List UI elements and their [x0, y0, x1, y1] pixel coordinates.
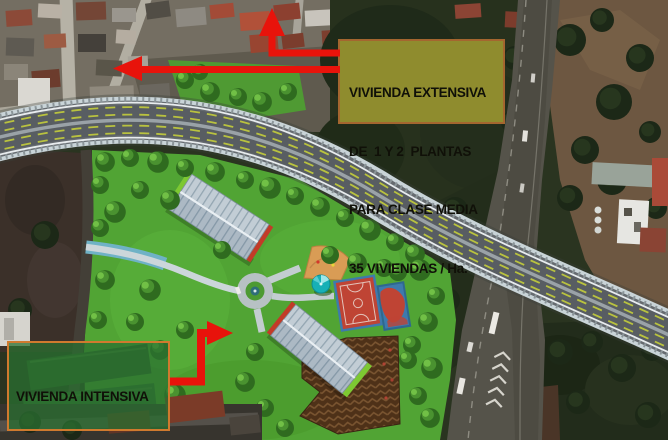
car [531, 73, 536, 82]
site-plan-slide: VIVIENDA EXTENSIVA DE 1 Y 2 PLANTAS PARA… [0, 0, 668, 440]
callout-line: VIVIENDA EXTENSIVA [349, 83, 503, 103]
callout-line: PARA CLASE MEDIA [349, 200, 503, 220]
scrub-field [0, 148, 88, 352]
callout-line: VIVIENDA INTENSIVA [16, 387, 168, 407]
callout-vivienda-intensiva: VIVIENDA INTENSIVA DE 11 PLANTAS, DE PRO… [7, 341, 170, 431]
callout-line: DE 1 Y 2 PLANTAS [349, 142, 503, 162]
callout-line: 35 VIVIENDAS / Ha. [349, 259, 503, 279]
callout-vivienda-extensiva: VIVIENDA EXTENSIVA DE 1 Y 2 PLANTAS PARA… [338, 39, 505, 124]
